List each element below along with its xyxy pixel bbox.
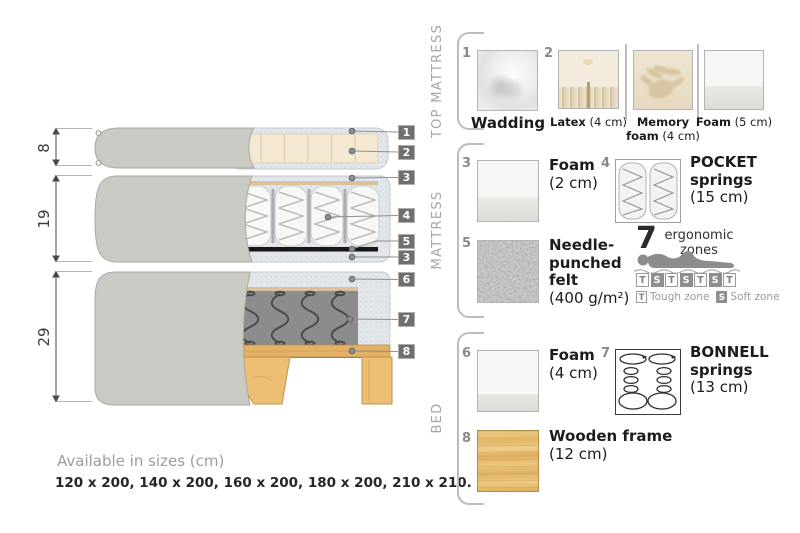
legend-tough: T Tough zone: [636, 291, 709, 303]
bonnell-springs-icon: [615, 349, 681, 415]
zone-box-tough: T: [665, 273, 678, 287]
item-detail: (4 cm): [549, 364, 598, 382]
dimension-label-8: 8: [35, 128, 53, 168]
available-sizes-title: Available in sizes (cm): [57, 452, 224, 470]
item-title: Latex: [550, 115, 586, 129]
item-caption-bonnell-springs: BONNELL springs(13 cm): [690, 344, 792, 397]
item-title: Foam: [549, 156, 595, 174]
callout-1: 1: [398, 125, 415, 140]
wadding-swatch: [477, 50, 538, 111]
item-caption-latex: Latex(4 cm): [543, 115, 634, 129]
callout-2: 2: [398, 145, 415, 160]
divider: [625, 44, 627, 120]
item-number: 8: [462, 431, 471, 446]
item-number: 7: [601, 346, 610, 361]
top-mattress-drawing: [95, 128, 388, 169]
zone-box-tough: T: [636, 273, 649, 287]
item-title: BONNELL springs: [690, 343, 769, 379]
available-sizes-list: 120 x 200, 140 x 200, 160 x 200, 180 x 2…: [55, 475, 472, 491]
callout-3b: 3: [398, 250, 415, 265]
item-title: Foam: [696, 115, 731, 129]
item-title: Wooden frame: [549, 427, 672, 445]
item-title: Needle-punched felt: [549, 236, 622, 289]
callout-5: 5: [398, 234, 415, 249]
dimension-label-29: 29: [35, 317, 53, 357]
callout-8: 8: [398, 344, 415, 359]
zone-box-soft: S: [709, 273, 722, 287]
needle-punched-felt-swatch: [477, 240, 539, 303]
legend-soft: S Soft zone: [716, 291, 779, 303]
memory-foam-swatch: [633, 50, 693, 110]
item-detail: (2 cm): [549, 174, 598, 192]
dimension-arrows: [53, 129, 59, 402]
divider: [697, 44, 699, 120]
callout-4: 4: [398, 208, 415, 223]
zone-box-soft: S: [680, 273, 693, 287]
item-caption-foam-5cm: Foam(5 cm): [689, 115, 779, 129]
zone-box-soft: S: [651, 273, 664, 287]
item-number: 1: [462, 46, 471, 61]
dimension-label-19: 19: [35, 199, 53, 239]
item-caption-wadding: Wadding: [463, 114, 553, 133]
legend-label: Tough zone: [650, 291, 709, 303]
pocket-springs-icon: [615, 159, 681, 223]
section-label-bed: BED: [430, 358, 446, 478]
foam-swatch: [704, 50, 764, 110]
item-detail: (5 cm): [731, 115, 772, 129]
zone-sequence: T S T S T S T: [636, 273, 736, 287]
bed-base-drawing: [95, 272, 392, 405]
callout-6: 6: [398, 272, 415, 287]
tough-zone-icon: T: [636, 291, 647, 303]
item-number: 2: [544, 46, 553, 61]
callout-3a: 3: [398, 170, 415, 185]
item-detail: (400 g/m²): [549, 289, 629, 307]
zone-legend: T Tough zone S Soft zone: [636, 291, 780, 303]
hand-imprint-icon: [634, 51, 692, 109]
item-detail: (4 cm): [586, 115, 627, 129]
legend-label: Soft zone: [730, 291, 779, 303]
item-caption-wooden-frame: Wooden frame(12 cm): [549, 428, 709, 463]
mattress-drawing: [95, 176, 390, 262]
item-number: 4: [601, 156, 610, 171]
latex-slit: [587, 82, 590, 108]
section-label-top-mattress: TOP MATTRESS: [430, 21, 446, 141]
foam-swatch: [477, 350, 539, 412]
item-detail: (12 cm): [549, 445, 607, 463]
bed-construction-infographic: 8 19 29 1 2 3 4 5 3 6 7 8 Available in s…: [0, 0, 800, 533]
item-number: 3: [462, 156, 471, 171]
item-caption-felt: Needle-punched felt(400 g/m²): [549, 237, 644, 308]
item-title: POCKET springs: [690, 153, 757, 189]
item-number: 6: [462, 346, 471, 361]
item-detail: (15 cm): [690, 188, 748, 206]
latex-spot: [583, 59, 593, 65]
item-title: Foam: [549, 346, 595, 364]
item-caption-pocket-springs: POCKET springs(15 cm): [690, 154, 792, 207]
dimension-ticks: [57, 129, 92, 402]
foam-swatch: [477, 160, 539, 222]
item-detail: (4 cm): [659, 129, 700, 143]
section-label-mattress: MATTRESS: [430, 170, 446, 290]
soft-zone-icon: S: [716, 291, 727, 303]
person-silhouette-icon: [634, 248, 740, 273]
zone-box-tough: T: [694, 273, 707, 287]
item-detail: (13 cm): [690, 378, 748, 396]
wooden-frame-swatch: [477, 430, 539, 492]
item-title: Wadding: [471, 114, 545, 132]
callout-7: 7: [398, 312, 415, 327]
item-number: 5: [462, 236, 471, 251]
zone-box-tough: T: [723, 273, 736, 287]
latex-swatch: [558, 50, 619, 109]
